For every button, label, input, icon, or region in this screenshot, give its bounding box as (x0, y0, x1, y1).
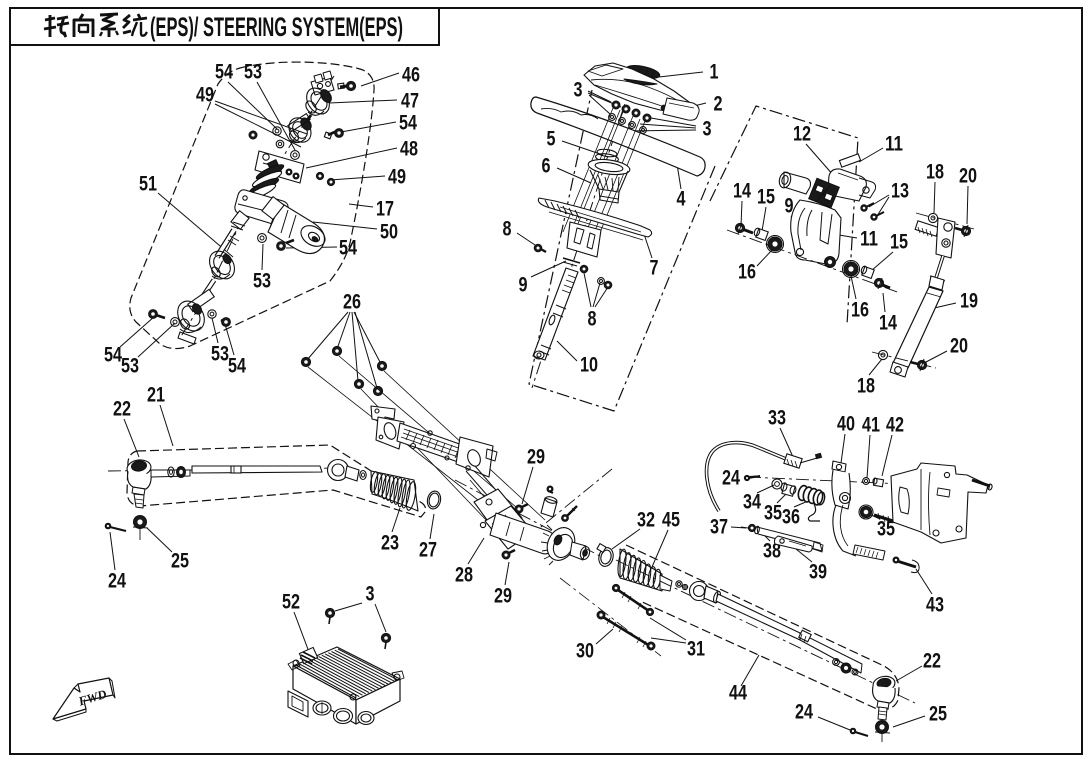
svg-text:54: 54 (228, 354, 246, 378)
svg-text:2: 2 (714, 92, 723, 116)
svg-text:48: 48 (400, 137, 418, 161)
svg-text:53: 53 (244, 60, 262, 84)
svg-text:25: 25 (929, 702, 947, 726)
svg-text:29: 29 (494, 584, 512, 608)
svg-text:46: 46 (402, 63, 420, 87)
svg-text:27: 27 (419, 538, 437, 562)
svg-text:51: 51 (139, 172, 157, 196)
svg-text:22: 22 (113, 397, 131, 421)
svg-text:7: 7 (650, 256, 659, 280)
svg-text:13: 13 (891, 179, 909, 203)
svg-text:35: 35 (764, 501, 782, 525)
svg-text:34: 34 (743, 490, 761, 514)
svg-text:37: 37 (710, 515, 728, 539)
svg-text:19: 19 (960, 289, 978, 313)
svg-text:18: 18 (857, 374, 875, 398)
svg-text:54: 54 (399, 111, 417, 135)
svg-text:15: 15 (890, 230, 908, 254)
svg-text:44: 44 (729, 681, 747, 705)
svg-text:20: 20 (959, 164, 977, 188)
svg-text:24: 24 (795, 700, 813, 724)
svg-text:16: 16 (851, 298, 869, 322)
svg-text:(EPS)/ STEERING SYSTEM(EPS): (EPS)/ STEERING SYSTEM(EPS) (150, 12, 403, 42)
svg-text:52: 52 (282, 590, 300, 614)
svg-text:14: 14 (879, 311, 897, 335)
svg-text:42: 42 (886, 413, 904, 437)
svg-text:18: 18 (926, 160, 944, 184)
svg-text:3: 3 (574, 78, 583, 102)
svg-text:20: 20 (950, 334, 968, 358)
svg-text:25: 25 (171, 549, 189, 573)
svg-text:10: 10 (580, 353, 598, 377)
svg-text:43: 43 (926, 593, 944, 617)
svg-text:24: 24 (108, 569, 126, 593)
svg-text:6: 6 (542, 154, 551, 178)
svg-text:5: 5 (547, 127, 556, 151)
svg-text:11: 11 (860, 227, 878, 251)
svg-text:17: 17 (376, 197, 394, 221)
svg-text:29: 29 (527, 445, 545, 469)
svg-text:14: 14 (733, 179, 751, 203)
svg-text:49: 49 (196, 83, 214, 107)
svg-text:3: 3 (366, 582, 375, 606)
svg-text:21: 21 (147, 383, 165, 407)
svg-text:12: 12 (793, 122, 811, 146)
svg-text:11: 11 (885, 132, 903, 156)
svg-text:36: 36 (782, 505, 800, 529)
svg-text:54: 54 (104, 343, 122, 367)
svg-text:33: 33 (768, 406, 786, 430)
svg-text:32: 32 (637, 508, 655, 532)
svg-text:49: 49 (388, 165, 406, 189)
svg-text:41: 41 (862, 413, 880, 437)
svg-text:15: 15 (757, 185, 775, 209)
svg-text:31: 31 (687, 637, 705, 661)
svg-text:9: 9 (519, 273, 528, 297)
svg-text:8: 8 (503, 217, 512, 241)
svg-text:50: 50 (380, 220, 398, 244)
svg-text:54: 54 (339, 236, 357, 260)
svg-text:39: 39 (809, 560, 827, 584)
svg-text:24: 24 (722, 466, 740, 490)
svg-text:4: 4 (677, 187, 686, 211)
svg-text:26: 26 (343, 290, 361, 314)
svg-text:53: 53 (253, 269, 271, 293)
svg-text:40: 40 (837, 412, 855, 436)
svg-text:47: 47 (401, 89, 419, 113)
svg-text:53: 53 (121, 354, 139, 378)
svg-text:22: 22 (923, 649, 941, 673)
svg-text:3: 3 (703, 117, 712, 141)
svg-text:1: 1 (710, 60, 719, 84)
svg-text:30: 30 (576, 639, 594, 663)
svg-text:45: 45 (662, 508, 680, 532)
svg-text:54: 54 (215, 60, 233, 84)
svg-text:28: 28 (455, 563, 473, 587)
svg-text:53: 53 (211, 342, 229, 366)
svg-text:8: 8 (588, 307, 597, 331)
svg-text:23: 23 (381, 531, 399, 555)
svg-text:16: 16 (738, 260, 756, 284)
